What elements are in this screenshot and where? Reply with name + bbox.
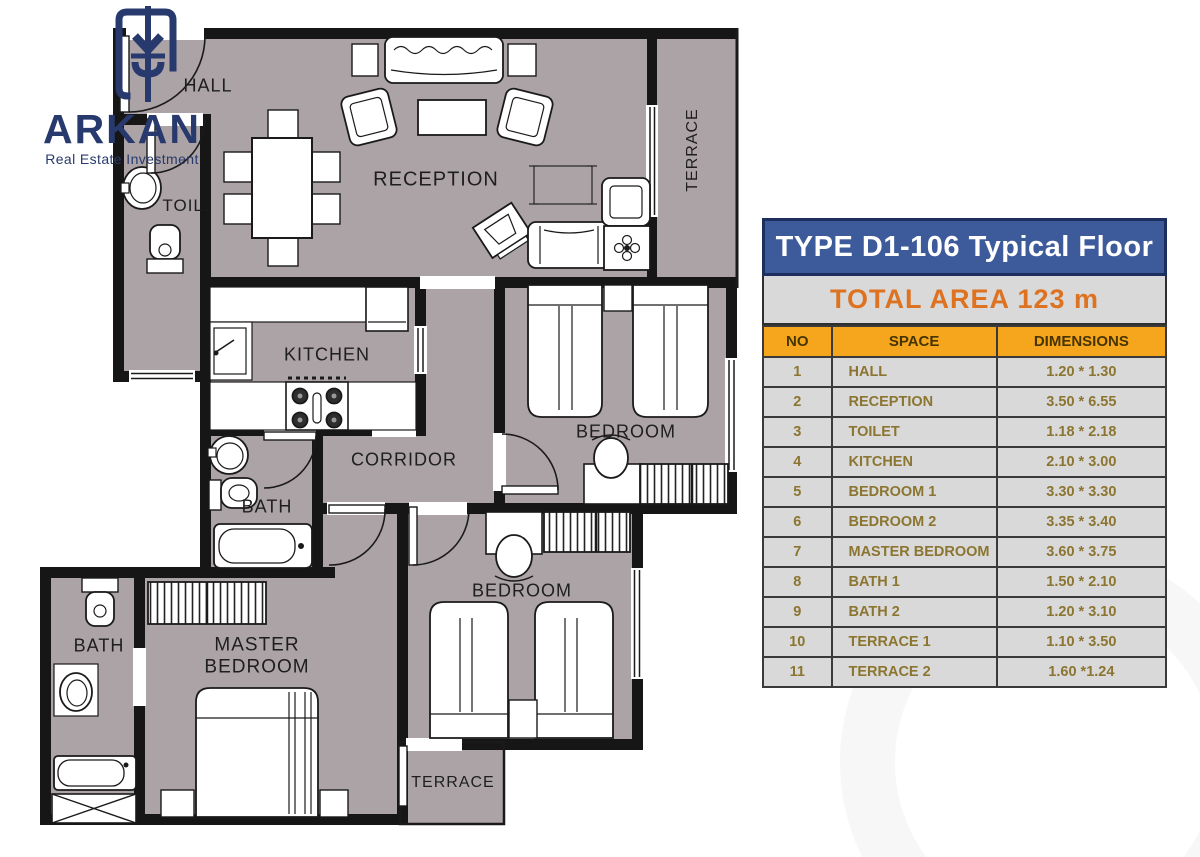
label-bath-2: BATH: [74, 636, 125, 657]
label-bedroom-1: BEDROOM: [576, 422, 676, 443]
label-master-line2: BEDROOM: [204, 657, 309, 679]
column-dimensions: DIMENSIONS: [997, 326, 1166, 357]
brand-name: ARKAN: [36, 109, 208, 150]
cell-space: MASTER BEDROOM: [832, 537, 997, 567]
cell-dims: 1.60 *1.24: [997, 657, 1166, 687]
cell-dims: 1.20 * 3.10: [997, 597, 1166, 627]
cell-dims: 1.50 * 2.10: [997, 567, 1166, 597]
brand-logo: ARKAN Real Estate Investment: [36, 6, 208, 167]
arkan-logo-icon: [113, 6, 183, 102]
table-row: 5BEDROOM 13.30 * 3.30: [763, 477, 1166, 507]
column-no: NO: [763, 326, 832, 357]
side-table-right: [508, 44, 536, 76]
label-bath-1: BATH: [242, 497, 293, 518]
cell-space: BATH 2: [832, 597, 997, 627]
cell-no: 2: [763, 387, 832, 417]
table-row: 8BATH 11.50 * 2.10: [763, 567, 1166, 597]
cell-space: TOILET: [832, 417, 997, 447]
label-terrace-top: TERRACE: [684, 108, 702, 191]
table-row: 1HALL1.20 * 1.30: [763, 357, 1166, 387]
column-space: SPACE: [832, 326, 997, 357]
cell-space: BEDROOM 2: [832, 507, 997, 537]
flower-table: [604, 226, 650, 270]
cell-no: 8: [763, 567, 832, 597]
cell-dims: 3.35 * 3.40: [997, 507, 1166, 537]
cell-no: 4: [763, 447, 832, 477]
label-corridor: CORRIDOR: [351, 450, 457, 471]
cell-dims: 3.50 * 6.55: [997, 387, 1166, 417]
cell-space: HALL: [832, 357, 997, 387]
label-toilet: TOIL.: [162, 196, 209, 216]
cell-dims: 3.30 * 3.30: [997, 477, 1166, 507]
cell-dims: 1.10 * 3.50: [997, 627, 1166, 657]
cell-space: RECEPTION: [832, 387, 997, 417]
sofa-bottom: [528, 222, 610, 268]
cell-no: 10: [763, 627, 832, 657]
cell-no: 11: [763, 657, 832, 687]
armchair-side: [602, 178, 650, 226]
cell-dims: 1.18 * 2.18: [997, 417, 1166, 447]
cell-space: KITCHEN: [832, 447, 997, 477]
table-row: 7MASTER BEDROOM3.60 * 3.75: [763, 537, 1166, 567]
table-row: 3TOILET1.18 * 2.18: [763, 417, 1166, 447]
cell-no: 5: [763, 477, 832, 507]
cell-no: 7: [763, 537, 832, 567]
label-bedroom-2: BEDROOM: [472, 581, 572, 602]
table-row: 6BEDROOM 23.35 * 3.40: [763, 507, 1166, 537]
cell-dims: 3.60 * 3.75: [997, 537, 1166, 567]
label-master-bedroom: MASTER BEDROOM: [204, 635, 309, 680]
page: HALL TOIL. RECEPTION TERRACE KITCHEN COR…: [0, 0, 1200, 857]
table-row: 2RECEPTION3.50 * 6.55: [763, 387, 1166, 417]
cell-space: BATH 1: [832, 567, 997, 597]
label-terrace-bottom: TERRACE: [411, 774, 494, 792]
cell-dims: 1.20 * 1.30: [997, 357, 1166, 387]
label-master-line1: MASTER: [204, 635, 309, 657]
cell-no: 3: [763, 417, 832, 447]
label-reception: RECEPTION: [373, 169, 499, 192]
dimensions-table: NO SPACE DIMENSIONS 1HALL1.20 * 1.302REC…: [762, 325, 1167, 688]
table-row: 4KITCHEN2.10 * 3.00: [763, 447, 1166, 477]
label-kitchen: KITCHEN: [284, 345, 370, 366]
cell-space: TERRACE 2: [832, 657, 997, 687]
info-panel: TYPE D1-106 Typical Floor TOTAL AREA 123…: [762, 218, 1167, 688]
cell-dims: 2.10 * 3.00: [997, 447, 1166, 477]
table-row: 10TERRACE 11.10 * 3.50: [763, 627, 1166, 657]
cell-no: 9: [763, 597, 832, 627]
cell-space: BEDROOM 1: [832, 477, 997, 507]
cell-space: TERRACE 1: [832, 627, 997, 657]
cell-no: 6: [763, 507, 832, 537]
sofa-top: [385, 37, 503, 83]
brand-tagline: Real Estate Investment: [36, 151, 208, 167]
cell-no: 1: [763, 357, 832, 387]
total-area: TOTAL AREA 123 m: [762, 276, 1167, 325]
table-header-row: NO SPACE DIMENSIONS: [763, 326, 1166, 357]
table-row: 11TERRACE 21.60 *1.24: [763, 657, 1166, 687]
table-row: 9BATH 21.20 * 3.10: [763, 597, 1166, 627]
side-table-left: [352, 44, 378, 76]
coffee-table: [418, 100, 486, 135]
panel-title: TYPE D1-106 Typical Floor: [762, 218, 1167, 276]
